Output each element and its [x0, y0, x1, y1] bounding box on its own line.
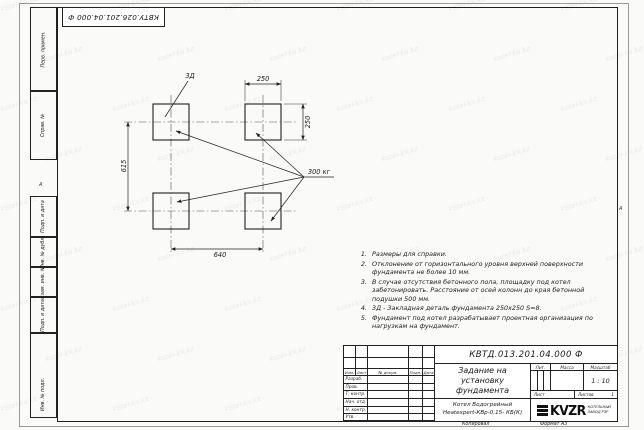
table-cell: [423, 414, 435, 421]
lit-cells: [530, 371, 550, 390]
sheets-value: 1: [611, 392, 614, 397]
format-label: Формат А3: [540, 422, 567, 427]
product-name: Котел Водогрейный Heatexpert-КВр-0,15- К…: [435, 398, 530, 421]
signature-table: Изм. Лист № докум. Подп. Дата Разраб. Пр…: [344, 346, 435, 421]
table-cell: [356, 358, 368, 369]
lit-header: Лит.: [530, 364, 550, 371]
logo-caption-line2: ЗАВОД РЗР: [588, 410, 611, 415]
kvzr-logo-caption: КОТЕЛЬНЫЙ ЗАВОД РЗР: [588, 405, 611, 414]
product-line2: Heatexpert-КВр-0,15- КБ(К): [443, 410, 522, 418]
table-cell: [368, 414, 409, 421]
table-cell: [368, 399, 409, 407]
table-cell: [423, 358, 435, 369]
kvzr-logo-text: KVZR: [550, 402, 586, 418]
company-logo-cell: KVZR КОТЕЛЬНЫЙ ЗАВОД РЗР: [530, 398, 617, 421]
drawing-title: Задание на установку фундамента: [435, 364, 530, 398]
sig-row-tkontr: Т. контр.: [344, 391, 368, 399]
sig-row-razrab: Разраб.: [344, 376, 368, 384]
table-cell: [409, 358, 423, 369]
sheets-label: Листов: [578, 392, 594, 397]
table-cell: [368, 407, 409, 414]
table-cell: [368, 346, 409, 358]
note-item: Размеры для справки.: [369, 250, 610, 259]
table-cell: [368, 358, 409, 369]
col-header-dokum: № докум.: [368, 369, 409, 376]
table-cell: [409, 391, 423, 399]
table-cell: [368, 391, 409, 399]
table-cell: [409, 407, 423, 414]
kvzr-logo-icon: [537, 405, 548, 416]
col-header-data: Дата: [423, 369, 435, 376]
embed-plate-label: 3Д: [185, 72, 194, 80]
table-cell: [409, 399, 423, 407]
sheet-label: Лист: [534, 392, 545, 397]
table-cell: [423, 376, 435, 384]
table-cell: [423, 384, 435, 391]
dim-bottom-640: 640: [214, 251, 227, 259]
notes-list: Размеры для справки. Отклонение от гориз…: [356, 250, 610, 331]
copied-label: Копировал: [462, 422, 489, 427]
table-cell: [409, 414, 423, 421]
table-cell: [423, 346, 435, 358]
note-item: Фундамент под котел разрабатывает проект…: [369, 314, 610, 331]
table-cell: [543, 371, 550, 390]
sheet-cell: Лист: [530, 390, 574, 398]
table-cell: [356, 346, 368, 358]
dimension-lines: [128, 84, 303, 249]
table-cell: [409, 346, 423, 358]
col-header-list: Лист: [356, 369, 368, 376]
col-header-podp: Подп.: [409, 369, 423, 376]
doc-number: КВТД.013.201.04.000 Ф: [435, 346, 617, 364]
scale-value: 1 : 10: [583, 371, 617, 390]
table-cell: [537, 371, 544, 390]
mass-value: [550, 371, 583, 390]
notes-block: Размеры для справки. Отклонение от гориз…: [356, 250, 610, 332]
drawing-sheet: { "watermark": { "text": "kotel-kv.kz" }…: [0, 0, 644, 430]
sig-row-nkontr: Н. контр.: [344, 407, 368, 414]
embedded-plates: [153, 104, 281, 229]
table-cell: [368, 384, 409, 391]
load-label: 300 кг: [308, 168, 331, 176]
sheets-cell: Листов 1: [574, 390, 617, 398]
table-cell: [423, 391, 435, 399]
product-line1: Котел Водогрейный: [453, 402, 512, 410]
mass-header: Масса: [550, 364, 583, 371]
leader-lines: [165, 81, 334, 221]
dim-right-250: 250: [304, 116, 312, 129]
extension-lines: [245, 80, 307, 140]
table-cell: [423, 399, 435, 407]
note-item: 3Д - Закладная деталь фундамента 250х250…: [369, 304, 610, 313]
title-block: Изм. Лист № докум. Подп. Дата Разраб. Пр…: [343, 345, 618, 422]
note-item: Отклонение от горизонтального уровня вер…: [369, 260, 610, 277]
table-cell: [344, 346, 356, 358]
table-cell: [423, 407, 435, 414]
note-item: В случае отсутствия бетонного пола, площ…: [369, 278, 610, 304]
sig-row-nachotd: Нач. отд.: [344, 399, 368, 407]
sig-row-prov: Пров.: [344, 384, 368, 391]
scale-header: Масштаб: [583, 364, 617, 371]
sig-row-utv: Утв.: [344, 414, 368, 421]
dim-top-250: 250: [257, 75, 270, 83]
dim-left-615: 615: [120, 160, 128, 173]
table-cell: [409, 384, 423, 391]
table-cell: [368, 376, 409, 384]
table-cell: [409, 376, 423, 384]
col-header-izm: Изм.: [344, 369, 356, 376]
table-cell: [344, 358, 356, 369]
